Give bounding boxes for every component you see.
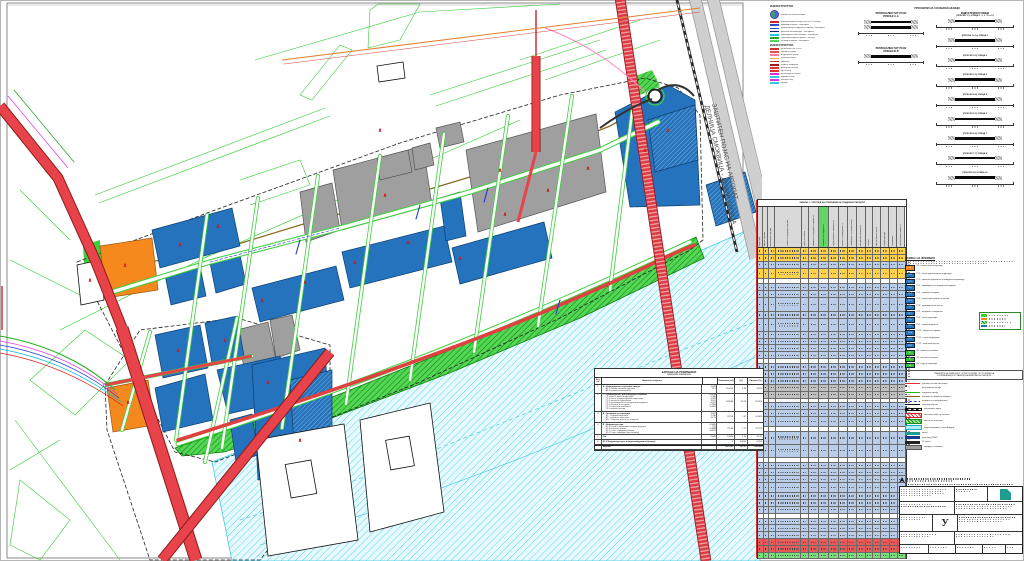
parcel-table-cell (881, 371, 889, 377)
legend-row-label: водоводна мрежа - планирана (781, 24, 809, 26)
parcel-table-cell (776, 269, 801, 279)
parcel-table-cell (873, 514, 881, 518)
parcel-table-cell (776, 553, 801, 558)
parcel-table-row (758, 371, 906, 378)
parcel-table-cell (819, 476, 829, 482)
balance-pct2: 22.75% (748, 423, 763, 435)
parcel-table-cell (819, 553, 829, 558)
line-symbol-chip (905, 413, 922, 418)
parcel-table-cell (819, 427, 829, 431)
parcel-table-cell (801, 445, 808, 457)
parcel-table-cell (819, 385, 829, 391)
infra-legend-row: електроенергетски вод 10(20)kV - постојн… (770, 21, 836, 23)
street-profile-section: (ПРЕСЕК 1-1) УЛИЦА 1, 2, 3, 11 и 12 (930, 15, 1020, 35)
landuse-legend: НАМЕНА НА ЗЕМЈИШТЕ Б2Б2 - големи трговск… (905, 257, 1023, 451)
parcel-table-cell (848, 417, 857, 426)
parcel-table-cell (857, 255, 866, 261)
parcel-table-cell (873, 248, 881, 254)
parcel-table-cell (769, 319, 776, 331)
balance-sub-label: Г3.5 откупни центри (603, 408, 701, 410)
infra-legend-row: фекална канализација - планирана (770, 31, 836, 33)
parcel-table-cell (857, 463, 866, 469)
parcel-table-row (758, 417, 906, 427)
balance-sub-value: 15.2 (703, 388, 716, 390)
landuse-row: Б2Б2 - големи трговски единици (905, 265, 1023, 270)
parcel-table-cell (769, 284, 776, 290)
parcel-table-cell (866, 483, 873, 492)
parcel-table-cell (839, 262, 848, 268)
parcel-table-cell (866, 476, 873, 482)
surface-balance-table: БИЛАНС НА ПОВРШИНИ нумерички показатели … (594, 368, 764, 451)
parcel-table-cell (769, 546, 776, 552)
balance-sub-label: А4.3 времено сместување (603, 390, 701, 392)
parcel-table-cell (829, 352, 839, 358)
parcel-table-cell (769, 332, 776, 338)
parcel-table-header-cell: класа на намена (802, 207, 809, 247)
dimension-line (936, 181, 1014, 185)
parcel-table-header-cell: инфраструктура (881, 207, 889, 247)
landuse-color-chip: Д1 (905, 350, 915, 355)
parcel-table-cell (801, 458, 808, 462)
balance-pct2: 85.35% (748, 394, 763, 412)
carriageway-bar (955, 118, 995, 121)
parcel-table-cell (819, 525, 829, 531)
parcel-table-header-cell: максимална височина м (857, 207, 866, 247)
parcel-table-cell (801, 371, 808, 377)
parcel-table-cell (776, 364, 801, 370)
landuse-color-chip: Г2.8 (905, 317, 915, 322)
parcel-table-cell (890, 410, 898, 416)
balance-group-number: 1. (595, 385, 602, 393)
balance-total-row: Вкупно:107374110.737100.00% (595, 445, 763, 451)
parcel-table-cell (809, 339, 819, 345)
parcel-table-cell (857, 403, 866, 409)
parcel-table-cell (881, 248, 889, 254)
parcel-table-row (758, 546, 906, 553)
parcel-table-cell (769, 483, 776, 492)
line-symbol-chip (905, 387, 920, 390)
line-symbol-chip (905, 382, 920, 385)
parcel-table-cell (839, 483, 848, 492)
parcel-table-cell (776, 463, 801, 469)
parcel-table-cell (839, 269, 848, 279)
parcel-table-cell (857, 378, 866, 384)
parcel-table-cell (839, 371, 848, 377)
parcel-table-cell (776, 514, 801, 518)
carriageway-bar (955, 176, 995, 179)
parcel-table-cell (890, 514, 898, 518)
infra-legend-row: атмосферска канализација - планирана (770, 34, 836, 36)
parcel-table-cell (819, 399, 829, 403)
legend-color-chip (770, 76, 779, 78)
legend-infra-rows-1: електроенергетски вод 10(20)kV - постојн… (770, 21, 836, 42)
plan-sheet: ЗАШТИТЕН ПОЈАС НА АВТОПАТ ДЕЛНИЦА СМОКВИ… (0, 0, 1024, 561)
parcel-table-cell (848, 514, 857, 518)
line-symbols-legend: граница на плански опфатрегулациона лини… (905, 382, 1023, 450)
parcel-table-row (758, 352, 906, 359)
parcel-table-cell (857, 500, 866, 506)
line-symbol-label: коридор на автопат (924, 446, 943, 448)
balance-group-number: 6. (595, 440, 602, 444)
parcel-table-cell (809, 255, 819, 261)
line-symbol-chip (905, 419, 922, 424)
parcel-table-cell (848, 284, 857, 290)
parcel-table-cell (769, 514, 776, 518)
parcel-table-cell (848, 291, 857, 297)
parcel-table-cell (866, 345, 873, 351)
parcel-table-cell (819, 507, 829, 513)
parcel-table-cell (857, 553, 866, 558)
traffic-legend-row: тротоари (770, 61, 836, 63)
parcel-table-row (758, 269, 906, 280)
parcel-table-cell (801, 432, 808, 444)
parcel-table-cell (898, 248, 906, 254)
parcel-table-cell (819, 298, 829, 311)
parcel-table-cell (829, 458, 839, 462)
profile-cross-section (852, 54, 930, 58)
dimension-number (998, 87, 1004, 88)
parcel-table-cell (881, 352, 889, 358)
dimension-number (946, 166, 952, 167)
parcel-table-cell (866, 417, 873, 426)
parcel-table-cell (776, 500, 801, 506)
line-symbol-chip (905, 425, 922, 430)
dimension-numbers (936, 47, 1014, 50)
note-line-2: СООБРАЌАЈНИЦИ И ГРАНИЦИ НА КАТАСТАРСКИ П… (908, 375, 1020, 377)
parcel-table-row (758, 553, 906, 559)
parcel-table-cell (881, 279, 889, 283)
parcel-table-cell (829, 332, 839, 338)
dimension-numbers (936, 67, 1014, 70)
parcel-table-cell (890, 312, 898, 318)
parcel-table-cell (776, 410, 801, 416)
legend-row-label: пешачки патеки (781, 57, 796, 59)
parcel-table-cell (873, 525, 881, 531)
parcel-table-cell (866, 410, 873, 416)
profiles-regional: РЕГИОНАЛЕН ПАТ Р1102ПРЕСЕК А-АРЕГИОНАЛЕН… (852, 12, 930, 191)
parcel-table-cell (829, 279, 839, 283)
balance-pct2: 14.88% (748, 412, 763, 422)
balance-group-row: 1.А - Комерцијални и деловни намениА1.2 … (595, 385, 763, 394)
parcel-table-cell (866, 312, 873, 318)
parcel-table-cell (776, 417, 801, 426)
embankment-hatch (948, 19, 955, 23)
parcel-table-cell (857, 458, 866, 462)
parcel-table-cell (769, 298, 776, 311)
parcel-table-cell (769, 378, 776, 384)
embankment-hatch (864, 25, 871, 29)
dimension-number (888, 35, 894, 36)
parcel-table-cell (809, 469, 819, 475)
parcel-table-cell (857, 514, 866, 518)
parcel-table-cell (857, 546, 866, 552)
parcel-table-cell (857, 469, 866, 475)
parcel-table-row (758, 483, 906, 493)
street-profile-section: (ПРЕСЕК 8-8) УЛИЦА 10 (930, 172, 1020, 192)
parcel-table-cell (873, 519, 881, 525)
stamp-icon (770, 10, 779, 19)
parcel-table-cell (890, 371, 898, 377)
street-profiles-panel: ПРОФИЛИ НА СООБРАЌАЈНИЦИ РЕГИОНАЛЕН ПАТ … (852, 7, 1022, 192)
line-symbol-label: водна површина - река Вардар (924, 427, 954, 429)
embankment-hatch (995, 97, 1002, 101)
legend-infra-title-1: ИНФРАСТРУКТУРА (770, 5, 836, 8)
parcel-table-cell (809, 312, 819, 318)
parcel-table-cell (890, 378, 898, 384)
parcel-table-cell (866, 364, 873, 370)
balance-group-number: 3. (595, 412, 602, 422)
parcel-table-row (758, 291, 906, 298)
parcel-table-cell (829, 359, 839, 363)
parcel-table-cell (890, 546, 898, 552)
parcel-table-cell (890, 399, 898, 403)
parcel-table-cell (819, 291, 829, 297)
carriageway-bar (955, 137, 995, 140)
legend-color-chip (770, 21, 779, 23)
legend-color-chip (770, 24, 779, 26)
legend-color-chip (770, 40, 779, 42)
landuse-intro-line (905, 263, 988, 264)
parcel-table-cell (890, 417, 898, 426)
embankment-hatch (948, 136, 955, 140)
landuse-row: Г2.10Г2.10 - комунални сервиси (905, 330, 981, 335)
parcel-table-cell (873, 352, 881, 358)
parcel-table-cell (819, 417, 829, 426)
dimension-number (866, 35, 872, 36)
parcel-table-cell (776, 262, 801, 268)
parcel-table-cell (819, 392, 829, 398)
parcel-table-row (758, 463, 906, 470)
carriageway-bar (871, 21, 911, 24)
parcel-table-cell (839, 399, 848, 403)
parcel-table-cell (857, 371, 866, 377)
street-profile-title: (ПРЕСЕК 2-2) УЛИЦА 2 (930, 55, 1020, 57)
parcel-table-row (758, 432, 906, 445)
dimension-number (972, 87, 978, 88)
parcel-table-cell (873, 385, 881, 391)
parcel-table-cell (873, 255, 881, 261)
parcel-table-cell (881, 445, 889, 457)
dimension-number (972, 166, 978, 167)
parcel-table-cell (809, 364, 819, 370)
landuse-color-chip: Г2.6 (905, 305, 915, 310)
parcel-table-cell (819, 532, 829, 538)
dimension-numbers (936, 106, 1014, 109)
parcel-table-cell (829, 262, 839, 268)
dimension-numbers (858, 63, 924, 66)
parcel-table-cell (819, 319, 829, 331)
parcel-table-cell (819, 248, 829, 254)
parcel-table-cell (857, 427, 866, 431)
line-symbol-row: заштитно зеленило (905, 419, 1023, 424)
parcel-table-cell (890, 432, 898, 444)
parcel-table-cell (809, 546, 819, 552)
parcel-table-cell (776, 359, 801, 363)
legend-row-label: регионален пат Р1102 (781, 48, 802, 50)
parcel-table-cell (857, 339, 866, 345)
parcel-table-header-cell: катност (866, 207, 873, 247)
parcel-table-cell (829, 319, 839, 331)
balance-subtitle: нумерички показатели (595, 374, 763, 376)
parcel-table-cell (848, 345, 857, 351)
balance-pct2: 0.83% (748, 440, 763, 444)
parcel-table-cell (881, 432, 889, 444)
legend-color-chip (770, 67, 779, 69)
parcel-table-cell (857, 332, 866, 338)
parcel-table-cell (873, 463, 881, 469)
landuse-row-label: Г2.4 - сервиси и складови (917, 292, 940, 294)
parcel-table-cell (848, 332, 857, 338)
parcel-table-cell (873, 410, 881, 416)
parcel-table-cell (866, 519, 873, 525)
parcel-table-cell (769, 352, 776, 358)
street-profile-title: (ПРЕСЕК 8-8) УЛИЦА 10 (930, 172, 1020, 174)
landuse-color-chip: Г2.12 (905, 343, 915, 348)
parcel-table-cell (829, 500, 839, 506)
parcel-table-cell (881, 427, 889, 431)
parcel-table-cell (866, 458, 873, 462)
landuse-color-chip: Г2.7 (905, 311, 915, 316)
parcel-table-cell (848, 445, 857, 457)
parcel-table-cell (873, 319, 881, 331)
parcel-table-cell (801, 385, 808, 391)
traffic-legend-row: крстосници (770, 70, 836, 72)
embankment-hatch (911, 25, 918, 29)
parcel-table-cell (881, 519, 889, 525)
parcel-table-cell (801, 364, 808, 370)
parcel-table-cell (839, 427, 848, 431)
parcel-table-cell (829, 298, 839, 311)
parcel-table-cell (857, 445, 866, 457)
landuse-row: Д3Д3 - спорт и рекреација (905, 363, 1023, 368)
parcel-table-cell (839, 417, 848, 426)
parcel-table-cell (866, 339, 873, 345)
parcel-table-cell (769, 469, 776, 475)
parcel-table-cell (839, 385, 848, 391)
parcel-table-cell (776, 458, 801, 462)
landuse-row: Г2.4Г2.4 - сервиси и складови (905, 292, 981, 297)
dimension-number (972, 28, 978, 29)
parcel-table-cell (848, 525, 857, 531)
legend-row-label: индустриски улици (781, 54, 799, 56)
dimension-number (946, 126, 952, 127)
parcel-table-cell (873, 392, 881, 398)
parcel-table-cell (898, 463, 906, 469)
parcel-table-cell (873, 339, 881, 345)
parcel-table-cell (829, 553, 839, 558)
line-symbol-label: граница на плански опфат (922, 383, 948, 385)
parcel-table-cell (776, 539, 801, 545)
parcel-table-cell (829, 483, 839, 492)
parcel-table-cell (829, 476, 839, 482)
parcel-table-row (758, 284, 906, 291)
balance-group-number: 2. (595, 394, 602, 412)
parcel-table-cell (857, 359, 866, 363)
parcel-table-cell (890, 345, 898, 351)
balance-sub-value: 5.0023 (703, 406, 716, 408)
legend-color-chip (770, 48, 779, 50)
parcel-table-cell (819, 339, 829, 345)
parcel-table-cell (881, 553, 889, 558)
parcel-table-cell (857, 248, 866, 254)
parcel-table-header-cell: компатибилна намена % (897, 207, 905, 247)
parcel-table-cell (809, 427, 819, 431)
regional-profile-group: РЕГИОНАЛЕН ПАТ Р1102ПРЕСЕК Б-Б (852, 47, 930, 66)
line-symbol-row: постојни објекти (905, 403, 1023, 406)
parcel-table-cell (857, 312, 866, 318)
parcel-table-cell (890, 339, 898, 345)
parcel-table-header-cell: број на паркинг места (873, 207, 881, 247)
landuse-color-chip: Г2.9 (905, 324, 915, 329)
parcel-table-cell (809, 352, 819, 358)
parcel-table-cell (873, 469, 881, 475)
parcel-table-cell (839, 339, 848, 345)
parcel-table-cell (866, 525, 873, 531)
profile-cross-section (930, 19, 1020, 23)
line-symbol-row: осовина на сообраќајница (905, 400, 1023, 402)
landuse-row-label: Д1 - парковско зеленило (917, 350, 939, 352)
dimension-line (858, 30, 924, 34)
parcel-table-cell (769, 519, 776, 525)
parcel-table-cell (839, 378, 848, 384)
parcel-table-cell (809, 332, 819, 338)
line-symbol-chip (905, 403, 920, 406)
parcel-table-cell (848, 539, 857, 545)
parcel-table-cell (809, 458, 819, 462)
parcel-table-cell (881, 255, 889, 261)
dimension-line (936, 122, 1014, 126)
parcel-table-cell (769, 312, 776, 318)
parcel-table-cell (776, 345, 801, 351)
parcel-table-cell (801, 352, 808, 358)
parcel-table-cell (866, 493, 873, 499)
dimension-number (910, 64, 916, 65)
parcel-table-cell (769, 417, 776, 426)
parcel-table-cell (890, 364, 898, 370)
parcel-table-cell (829, 539, 839, 545)
parcel-table-cell (881, 483, 889, 492)
parcel-table-cell (776, 392, 801, 398)
line-symbol-chip (905, 432, 920, 435)
parcel-table-cell (769, 525, 776, 531)
parcel-table-cell (819, 364, 829, 370)
parcel-table-cell (848, 378, 857, 384)
line-symbol-row: канал (905, 432, 1023, 435)
parcel-table-body (758, 248, 906, 559)
parcel-table-cell (857, 483, 866, 492)
line-symbol-chip (905, 395, 920, 398)
landuse-title: НАМЕНА НА ЗЕМЈИШТЕ (905, 257, 1023, 260)
parcel-table-cell (809, 378, 819, 384)
parcel-table-cell (801, 284, 808, 290)
parcel-table-cell (890, 284, 898, 290)
line-symbol-chip (905, 408, 922, 412)
parcel-table-cell (881, 284, 889, 290)
landuse-row: Г2.9Г2.9 - сервисни дејности (905, 324, 981, 329)
dimension-line (936, 161, 1014, 165)
parcel-table-cell (839, 532, 848, 538)
legend-row-label: гасоводна мрежа - планирана (781, 40, 809, 42)
parcel-table-cell (829, 399, 839, 403)
parcel-table-cell (809, 345, 819, 351)
parcel-table-cell (819, 483, 829, 492)
parcel-table-cell (873, 507, 881, 513)
parcel-table-row (758, 469, 906, 476)
parcel-table-cell (866, 445, 873, 457)
parcel-table-cell (769, 532, 776, 538)
parcel-table-cell (801, 469, 808, 475)
balance-group-number: 4. (595, 423, 602, 435)
